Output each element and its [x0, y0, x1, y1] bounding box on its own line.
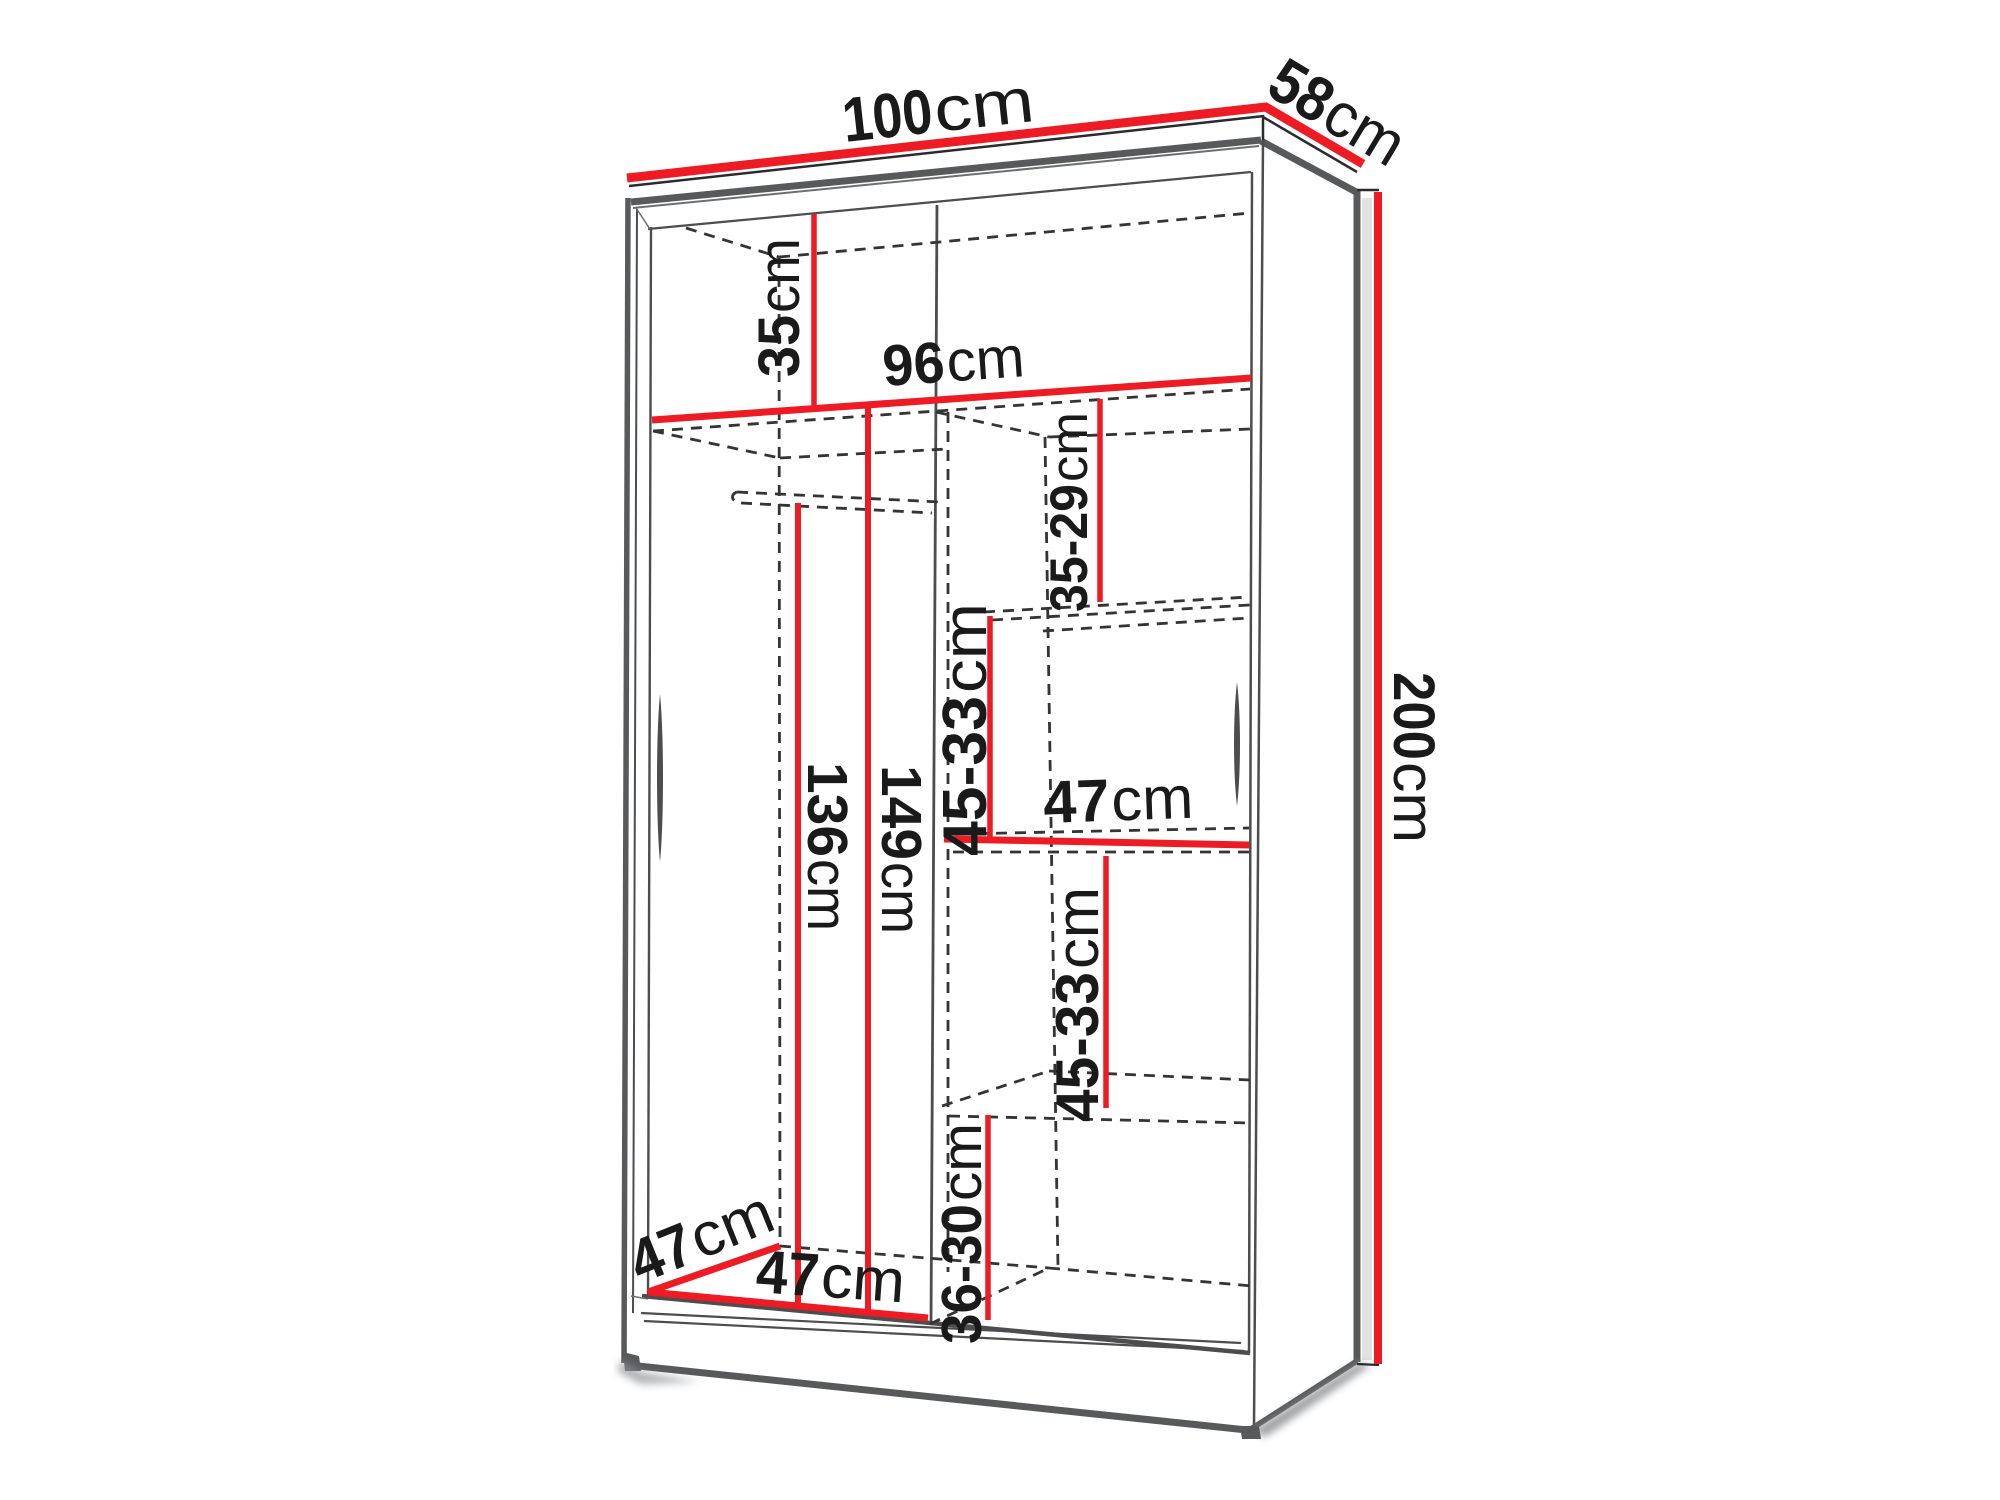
svg-text:35: 35: [747, 315, 812, 377]
svg-text:35-29: 35-29: [1040, 484, 1099, 612]
svg-text:cm: cm: [1110, 764, 1194, 834]
svg-text:cm: cm: [1044, 887, 1111, 969]
svg-text:cm: cm: [944, 324, 1026, 394]
svg-text:cm: cm: [795, 859, 859, 931]
svg-text:200: 200: [1381, 672, 1446, 760]
svg-text:cm: cm: [1040, 412, 1099, 482]
svg-text:45-33: 45-33: [1044, 972, 1111, 1122]
svg-text:47: 47: [754, 1237, 822, 1309]
svg-text:136: 136: [795, 762, 859, 857]
svg-text:100: 100: [839, 76, 936, 155]
svg-text:36-30: 36-30: [930, 1204, 994, 1344]
svg-text:cm: cm: [930, 65, 1037, 146]
svg-text:47: 47: [1042, 767, 1110, 836]
svg-text:cm: cm: [747, 238, 812, 313]
svg-text:96: 96: [880, 330, 946, 399]
svg-text:149: 149: [869, 765, 933, 860]
svg-text:cm: cm: [931, 603, 1000, 693]
svg-text:cm: cm: [819, 1242, 908, 1316]
svg-text:cm: cm: [930, 1123, 994, 1201]
svg-text:cm: cm: [1381, 762, 1446, 843]
svg-text:cm: cm: [869, 862, 933, 934]
svg-text:45-33: 45-33: [931, 696, 1000, 856]
